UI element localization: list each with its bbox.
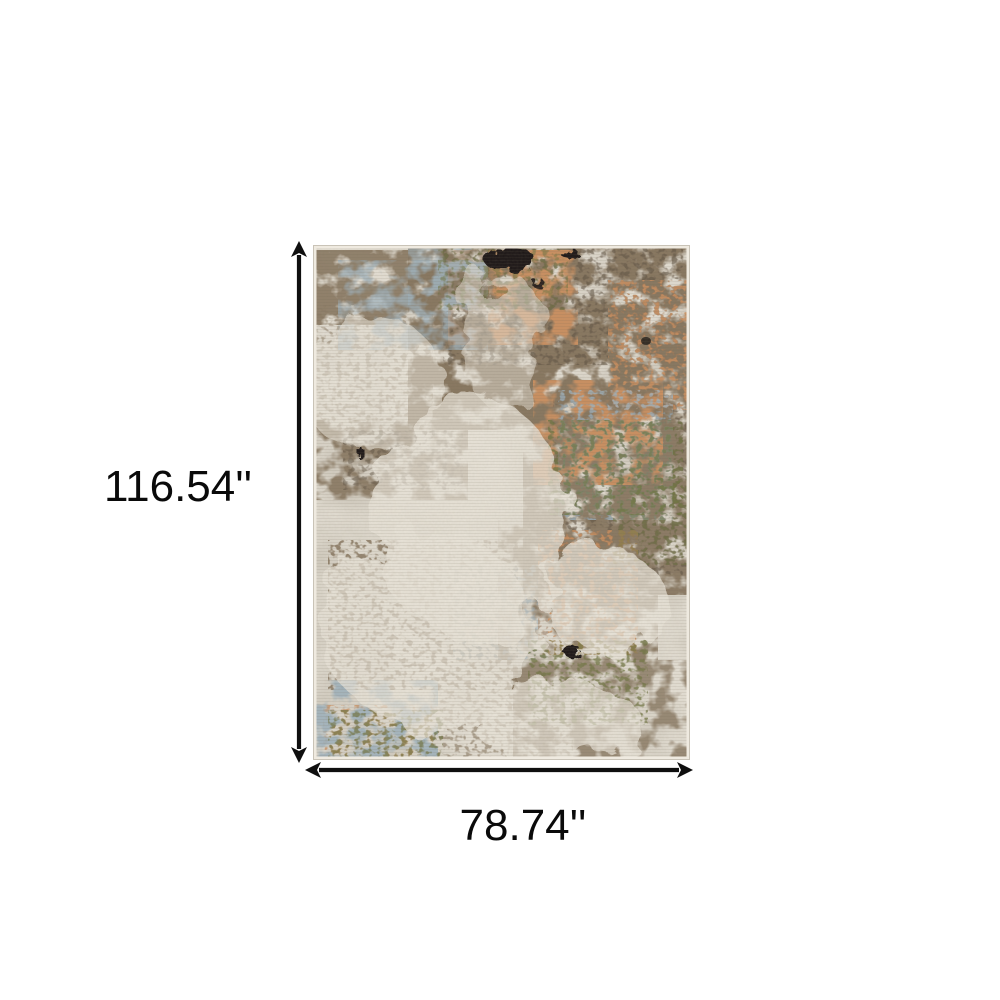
rug-product-image	[313, 245, 690, 760]
rug-texture-svg	[313, 245, 690, 760]
width-dimension-label: 78.74''	[423, 802, 623, 850]
vertical-dimension-arrow	[289, 241, 309, 763]
arrow-right-icon	[677, 762, 693, 778]
product-dimension-figure: 116.54'' 78.74''	[0, 0, 1000, 1000]
rug-weave-overlay	[313, 245, 690, 760]
horizontal-dimension-arrow	[305, 760, 693, 780]
arrow-left-icon	[305, 762, 321, 778]
height-dimension-label: 116.54''	[78, 463, 278, 511]
arrow-up-icon	[291, 241, 307, 257]
